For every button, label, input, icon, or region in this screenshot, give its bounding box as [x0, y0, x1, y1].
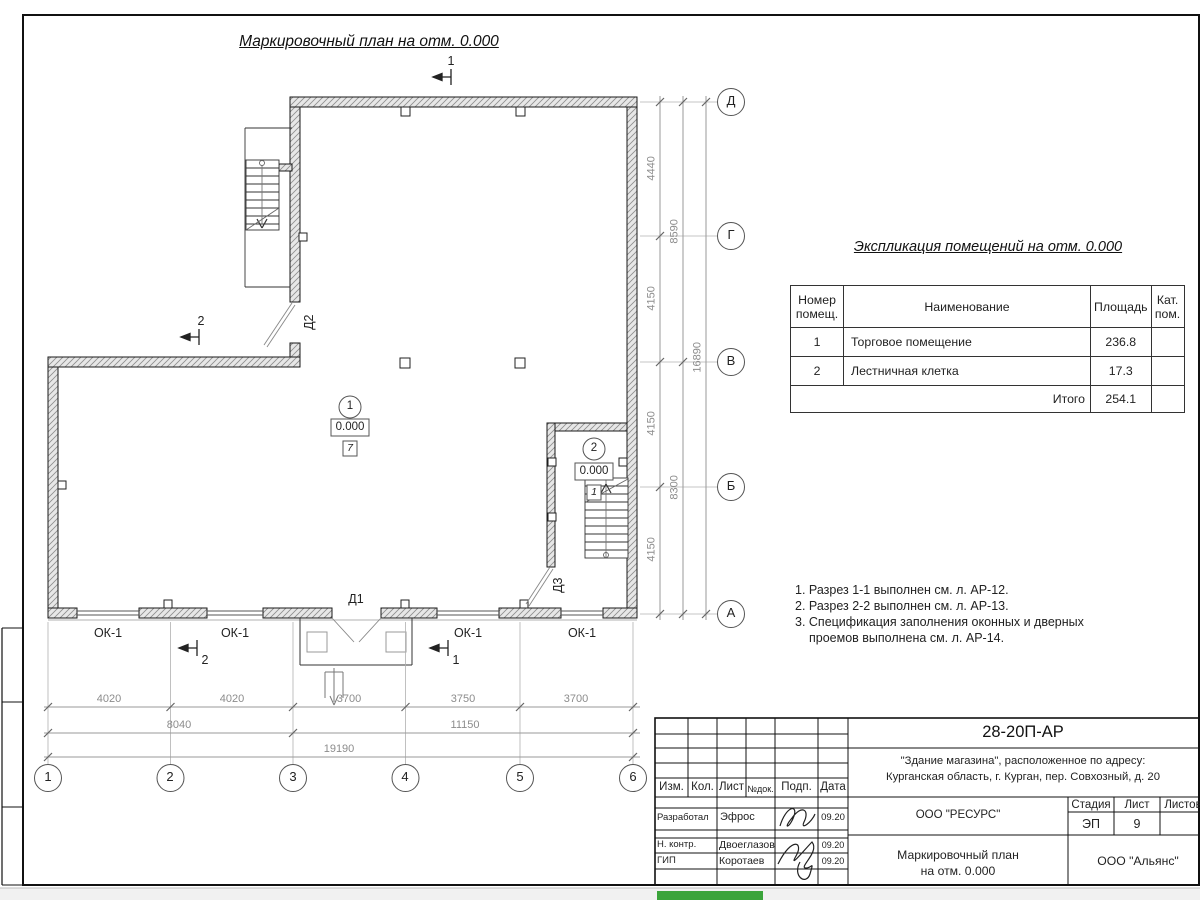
dim-text: 4150 — [646, 268, 659, 328]
dim-text: 4150 — [646, 519, 659, 579]
axis-bubble-label: Д — [721, 94, 741, 109]
tb-col-header: №док. — [746, 784, 775, 794]
window-label: ОК-1 — [83, 626, 133, 640]
section-label-top: 1 — [444, 54, 458, 68]
tb-col-header: Подп. — [775, 781, 818, 794]
tb-sheets-label: Листов — [1160, 799, 1200, 812]
expl-cell: Лестничная клетка — [844, 357, 1091, 386]
expl-cell: 2 — [791, 357, 844, 386]
window-label: ОК-1 — [210, 626, 260, 640]
section-label-left: 2 — [194, 314, 208, 328]
expl-total-label: Итого — [791, 386, 1091, 413]
expl-cell: 17.3 — [1091, 357, 1152, 386]
note-line: 1. Разрез 1-1 выполнен см. л. АР-12. — [795, 582, 1009, 598]
tb-date: 09.20 — [818, 813, 848, 824]
section-label-bottom-left: 2 — [198, 653, 212, 667]
dim-text: 3750 — [433, 693, 493, 706]
tb-date: 09.20 — [818, 856, 848, 866]
axis-bubble-label: 6 — [623, 770, 643, 785]
tb-object-line: Курганская область, г. Курган, пер. Совх… — [848, 771, 1198, 784]
dim-text: 19190 — [309, 743, 369, 756]
tb-col-header: Дата — [818, 781, 848, 794]
expl-cell — [1151, 386, 1184, 413]
tb-date: 09.20 — [818, 840, 848, 850]
walls — [48, 97, 637, 618]
floor-type-mark: 1 — [587, 486, 601, 498]
tb-role: Н. контр. — [657, 840, 696, 851]
window-label: ОК-1 — [443, 626, 493, 640]
tb-role: ГИП — [657, 856, 676, 867]
window-label: ОК-1 — [557, 626, 607, 640]
drawing-sheet: Маркировочный план на отм. 0.000 ОК-1 ОК… — [0, 0, 1200, 900]
expl-header: Площадь — [1091, 286, 1152, 328]
axis-bubbles — [35, 89, 745, 792]
tb-sheet-label: Лист — [1114, 799, 1160, 812]
expl-cell: Торговое помещение — [844, 328, 1091, 357]
dim-text: 11150 — [435, 719, 495, 732]
room-number: 2 — [584, 442, 604, 455]
dim-text: 8590 — [669, 201, 682, 261]
room-elevation: 0.000 — [331, 421, 369, 434]
room-elevation: 0.000 — [575, 465, 613, 478]
tb-name: Эфрос — [720, 811, 755, 824]
explication-table: Номер помещ. Наименование Площадь Кат. п… — [790, 285, 1185, 413]
dim-text: 3700 — [319, 693, 379, 706]
dim-text: 8300 — [669, 457, 682, 517]
expl-cell: 236.8 — [1091, 328, 1152, 357]
tb-doc-number: 28-20П-АР — [873, 723, 1173, 742]
stairs-exterior — [245, 128, 292, 287]
tb-object-line: "Здание магазина", расположенное по адре… — [848, 755, 1198, 768]
room-number: 1 — [340, 400, 360, 413]
expl-total-value: 254.1 — [1091, 386, 1152, 413]
tb-col-header: Изм. — [656, 781, 687, 794]
axis-bubble-label: 2 — [160, 770, 180, 785]
tb-col-header: Кол. — [688, 781, 717, 794]
expl-cell — [1151, 328, 1184, 357]
entrance-porch — [300, 618, 412, 705]
expl-header: Кат. пом. — [1151, 286, 1184, 328]
axis-bubble-label: 4 — [395, 770, 415, 785]
explication-title: Экспликация помещений на отм. 0.000 — [838, 239, 1138, 256]
tb-sheet-title: Маркировочный план — [848, 848, 1068, 862]
axis-bubble-label: А — [721, 606, 741, 621]
section-label-bottom-right: 1 — [449, 653, 463, 667]
room-markers — [331, 396, 613, 500]
expl-header: Наименование — [844, 286, 1091, 328]
dim-text: 8040 — [149, 719, 209, 732]
expl-cell — [1151, 357, 1184, 386]
tb-name: Двоеглазов — [719, 839, 775, 851]
expl-cell: 1 — [791, 328, 844, 357]
dim-text: 3700 — [546, 693, 606, 706]
tb-stage-value: ЭП — [1068, 817, 1114, 831]
tb-sheet-title: на отм. 0.000 — [848, 864, 1068, 878]
axis-bubble-label: Б — [721, 479, 741, 494]
main-title: Маркировочный план на отм. 0.000 — [238, 33, 500, 51]
dim-text: 4440 — [646, 138, 659, 198]
door-swings — [264, 303, 553, 642]
axis-bubble-label: Г — [721, 228, 741, 243]
note-line: 2. Разрез 2-2 выполнен см. л. АР-13. — [795, 598, 1009, 614]
axis-bubble-label: 3 — [283, 770, 303, 785]
dim-text: 16890 — [692, 327, 705, 387]
tb-role: Разработал — [657, 813, 709, 824]
tb-col-header: Лист — [717, 781, 746, 794]
bottom-strip — [0, 888, 1200, 900]
door-label-d1: Д1 — [338, 592, 374, 606]
axis-bubble-label: 1 — [38, 770, 58, 785]
door-label-d2: Д2 — [302, 307, 316, 337]
tb-designer-org: ООО "РЕСУРС" — [848, 809, 1068, 822]
floor-type-mark: 7 — [343, 442, 357, 454]
door-label-d3: Д3 — [551, 570, 565, 600]
tb-sheet-value: 9 — [1114, 817, 1160, 831]
dim-text: 4150 — [646, 393, 659, 453]
axis-bubble-label: 5 — [510, 770, 530, 785]
dim-text: 4020 — [79, 693, 139, 706]
note-line: проемов выполнена см. л. АР-14. — [809, 630, 1004, 646]
dim-text: 4020 — [202, 693, 262, 706]
expl-header: Номер помещ. — [791, 286, 844, 328]
tb-stage-label: Стадия — [1068, 799, 1114, 812]
taskbar-green-bar — [657, 891, 763, 900]
tb-client-org: ООО "Альянс" — [1068, 854, 1200, 868]
tb-name: Коротаев — [719, 855, 764, 867]
axis-bubble-label: В — [721, 354, 741, 369]
note-line: 3. Спецификация заполнения оконных и две… — [795, 614, 1084, 630]
